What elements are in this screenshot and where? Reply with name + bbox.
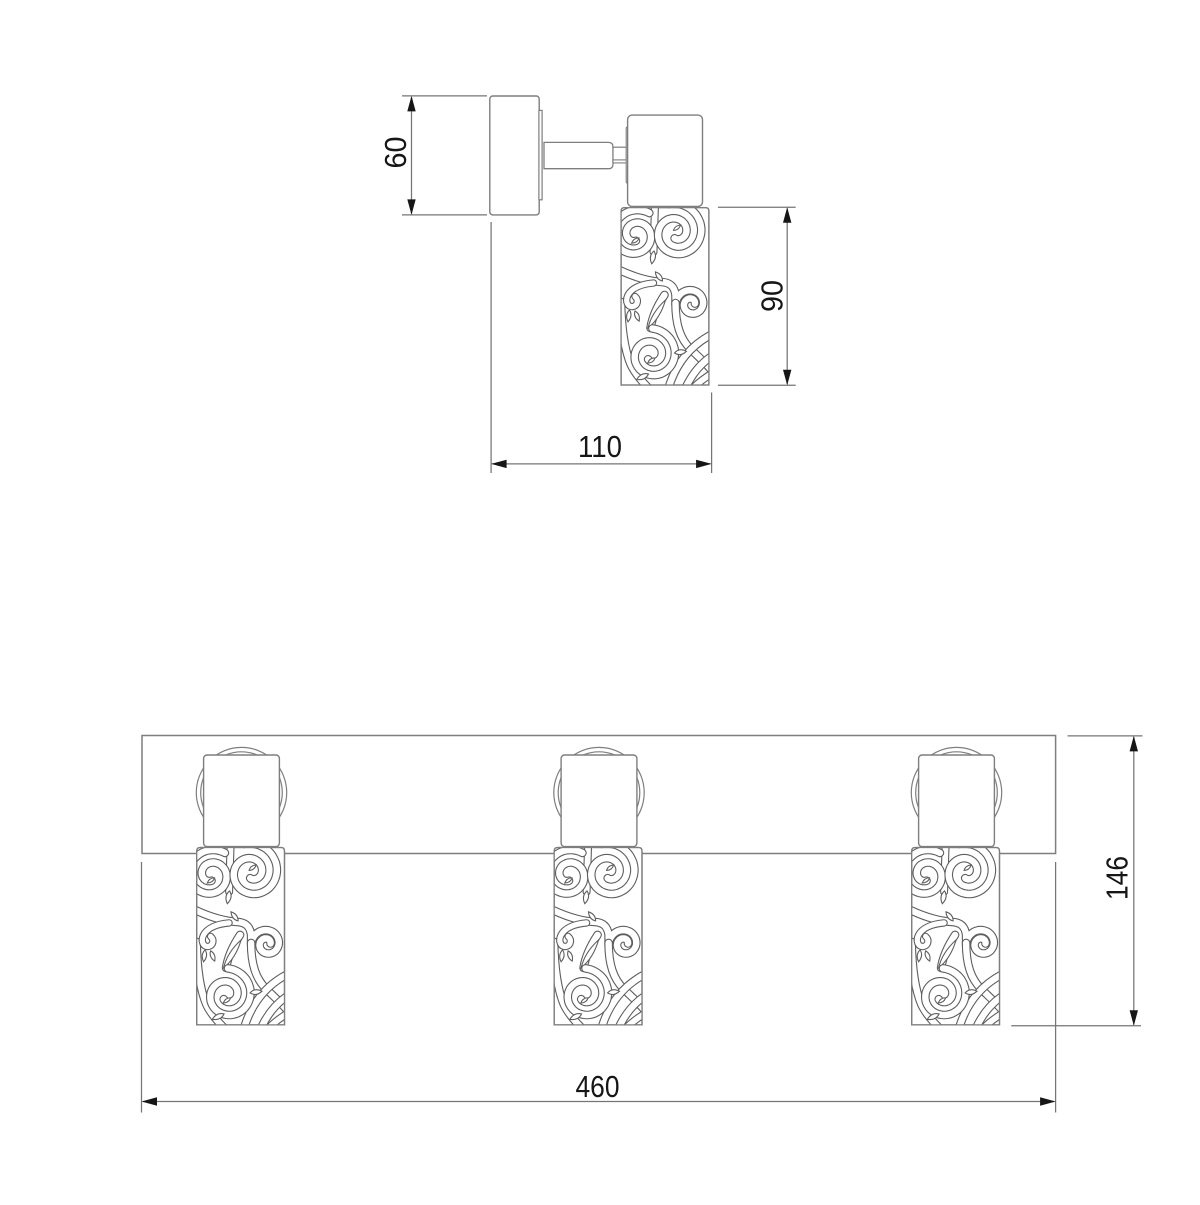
svg-text:460: 460 xyxy=(576,1069,620,1104)
svg-text:110: 110 xyxy=(578,429,622,464)
svg-text:146: 146 xyxy=(1100,856,1135,900)
svg-text:60: 60 xyxy=(378,137,413,169)
svg-text:90: 90 xyxy=(755,280,790,312)
